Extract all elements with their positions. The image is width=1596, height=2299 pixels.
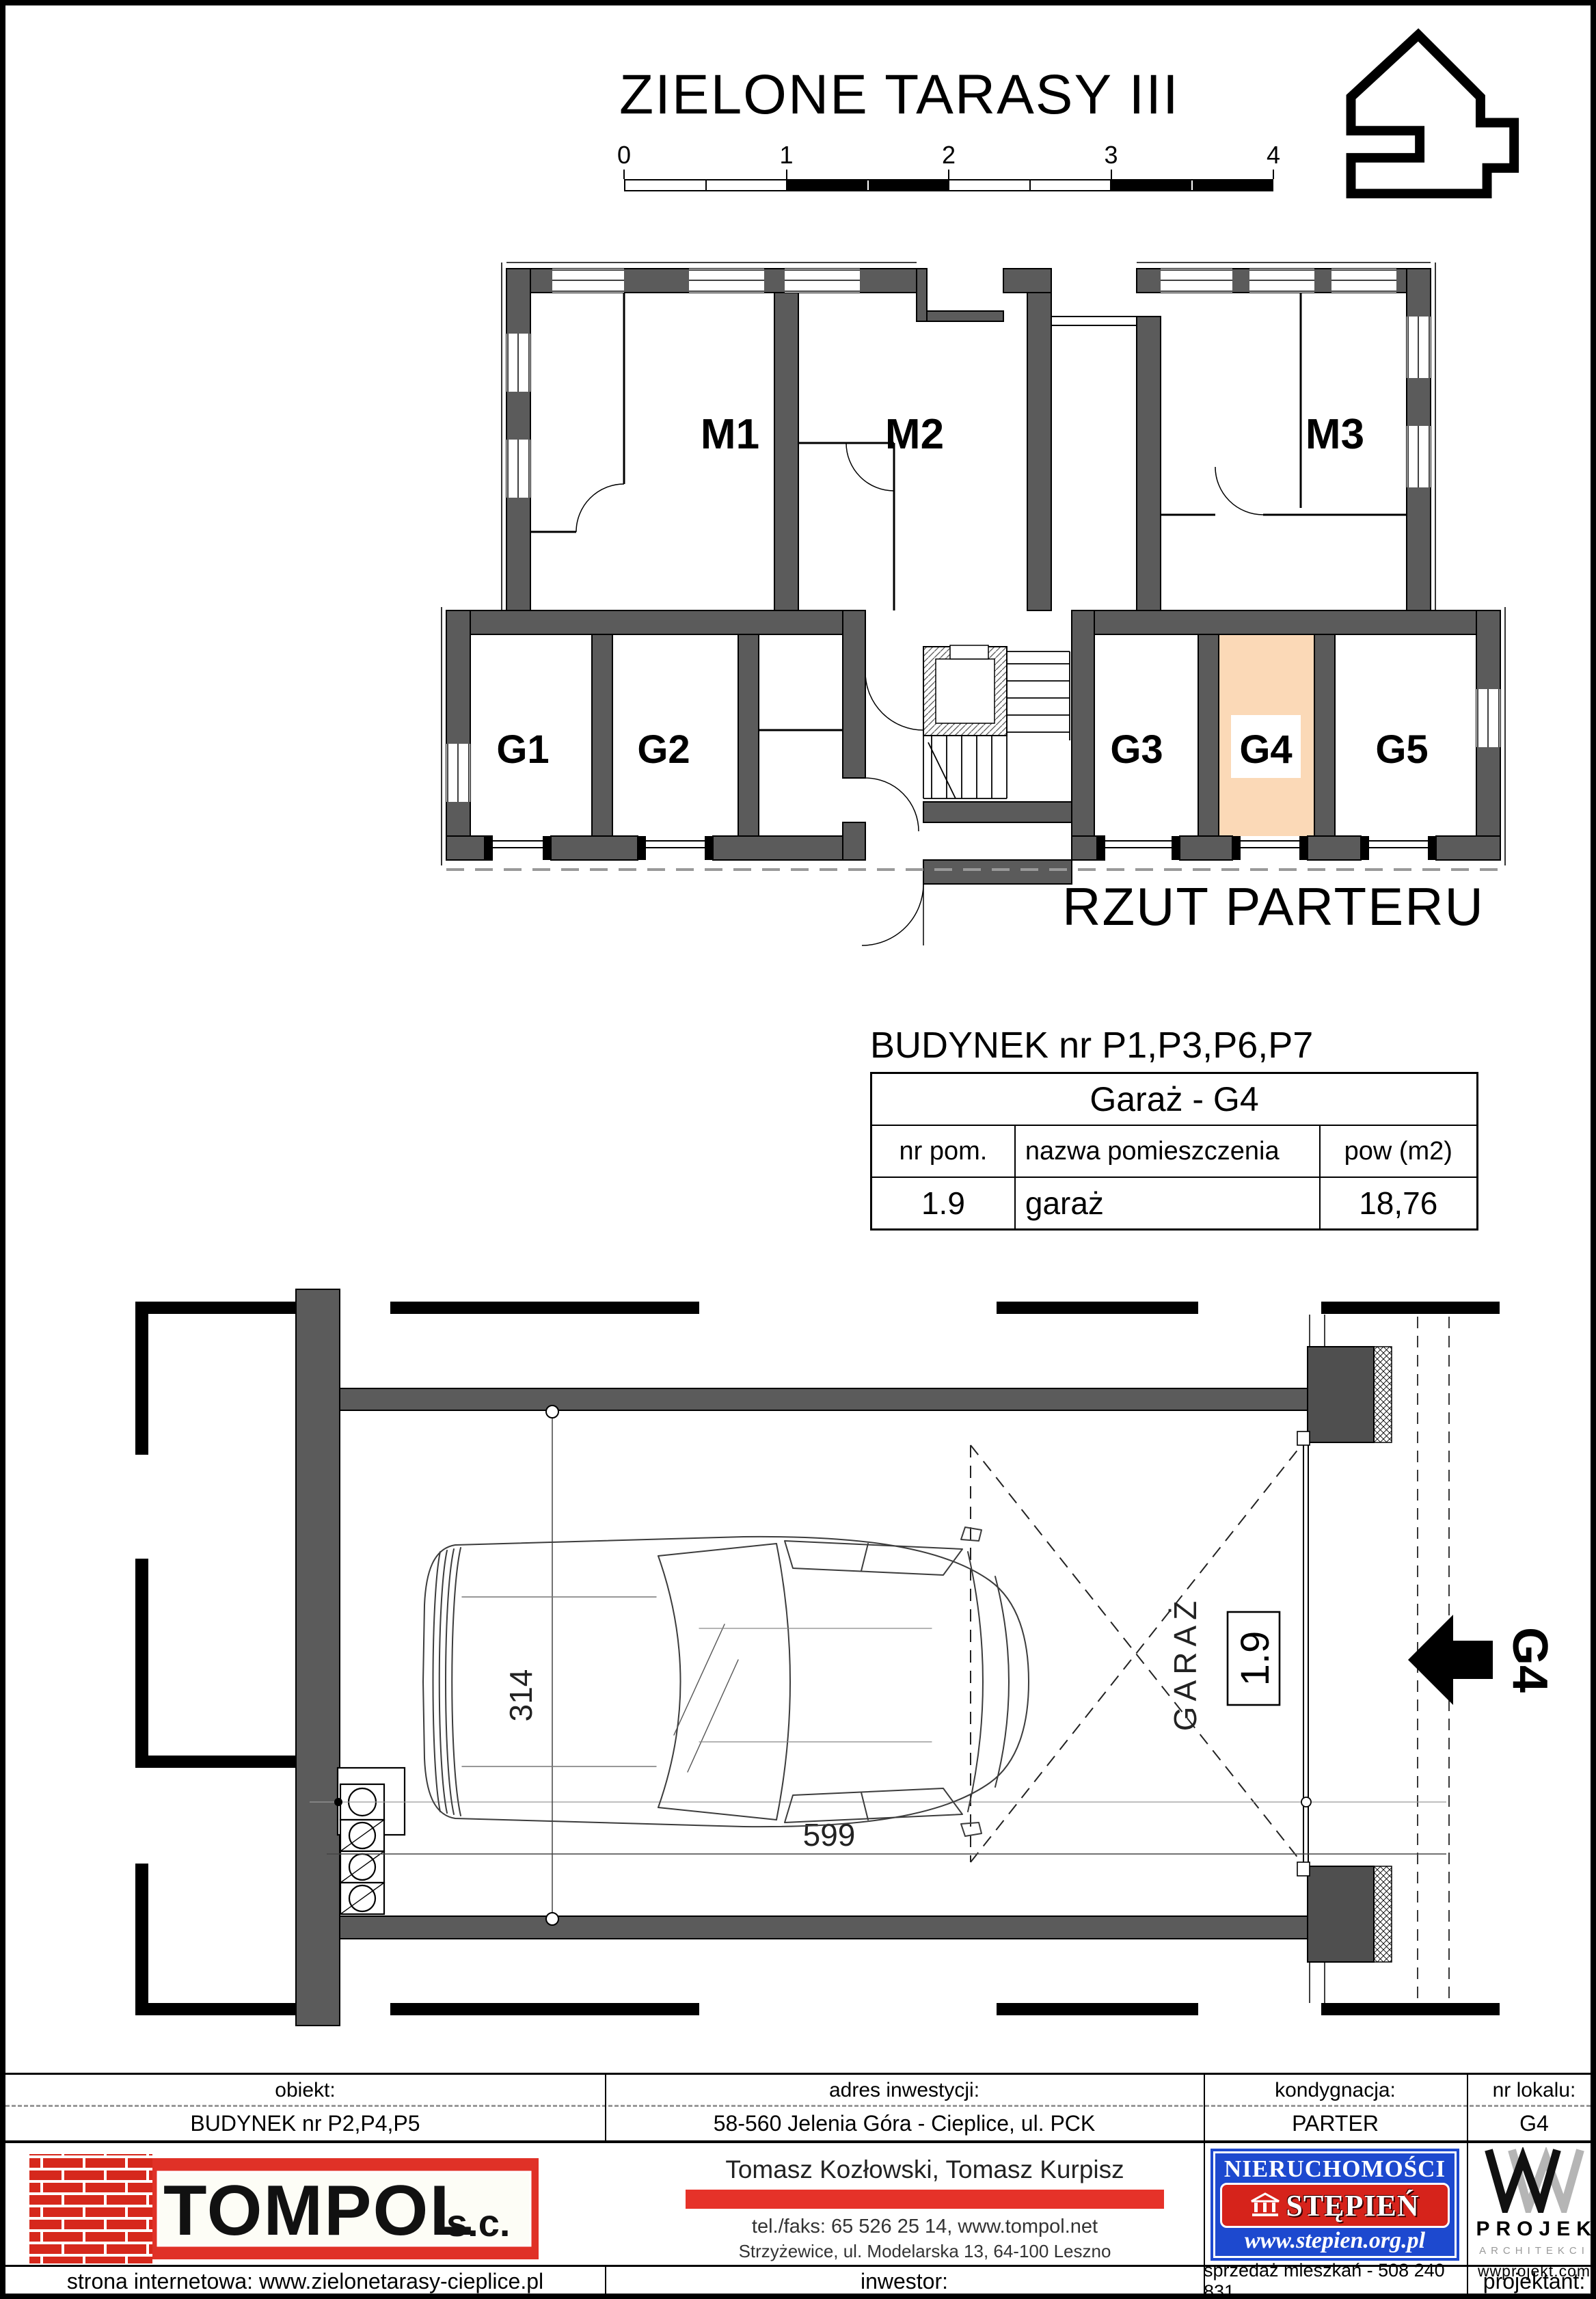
unit-label-g4: G4 [1239, 727, 1292, 772]
tompol-contact: Tomasz Kozłowski, Tomasz Kurpisz tel./fa… [679, 2155, 1171, 2262]
unit-label-m3: M3 [1306, 411, 1364, 458]
entry-arrow-icon [1408, 1615, 1493, 1705]
ground-floor-plan: M1 M2 M3 G1 G2 G3 G4 G5 RZUT PARTERU [442, 263, 1505, 945]
unit-label-m1: M1 [701, 411, 759, 458]
tompol-suffix: s.c. [446, 2201, 510, 2244]
entry-unit-label: G4 [1502, 1627, 1557, 1693]
unit-label-g1: G1 [496, 727, 549, 772]
col-header: nazwa pomieszczenia [1015, 1125, 1320, 1177]
footer-header-obiekt: obiekt: [5, 2075, 605, 2106]
garage-walls [296, 1289, 1308, 2026]
utility-meters [338, 1768, 405, 1914]
col-header: pow (m2) [1320, 1125, 1478, 1177]
room-name: GARAŻ [1167, 1596, 1203, 1731]
col-header: nr pom. [871, 1125, 1015, 1177]
footer-inwestor: inwestor: [605, 2267, 1204, 2296]
pillars [1308, 1315, 1392, 2003]
sheet: ZIELONE TARASY III 0 1 2 3 4 [0, 0, 1596, 2299]
footer-header-adres: adres inwestycji: [605, 2075, 1204, 2106]
unit-table: Garaż - G4 nr pom. nazwa pomieszczenia p… [870, 1072, 1478, 1231]
footer-header-kondygnacja: kondygnacja: [1204, 2075, 1467, 2106]
wprojekt-sub: ARCHITEKCI [1476, 2245, 1593, 2257]
garage-detail-plan: 314 599 [135, 1289, 1557, 2026]
dim-width: 599 [803, 1817, 856, 1853]
dim-depth: 314 [503, 1669, 539, 1722]
room-number: 1.9 [1233, 1631, 1277, 1686]
title-block: obiekt: adres inwestycji: kondygnacja: n… [5, 2073, 1591, 2294]
tompol-name: TOMPOL [163, 2171, 474, 2250]
unit-label-g5: G5 [1375, 727, 1428, 772]
stairwell [923, 645, 1070, 798]
cell-room-name: garaż [1015, 1177, 1320, 1230]
tompol-logo: TOMPOL s.c. [29, 2154, 542, 2263]
footer-sales-phone: sprzedaż mieszkań - 508 240 831 [1204, 2267, 1467, 2296]
table-title: Garaż - G4 [871, 1073, 1478, 1126]
footer-header-nr-lokalu: nr lokalu: [1467, 2075, 1596, 2106]
wprojekt-name: PROJEKT [1476, 2218, 1593, 2241]
tompol-phone: tel./faks: 65 526 25 14, www.tompol.net [679, 2216, 1171, 2238]
stepien-line1: NIERUCHOMOŚCI [1224, 2155, 1446, 2183]
wprojekt-w-icon [1483, 2147, 1586, 2213]
footer-projektant: projektant: [1467, 2267, 1596, 2296]
footer-value-obiekt: BUDYNEK nr P2,P4,P5 [5, 2106, 605, 2140]
footer-value-kondygnacja: PARTER [1204, 2106, 1467, 2140]
wprojekt-logo: PROJEKT ARCHITEKCI wwprojekt.com [1476, 2147, 1593, 2281]
cell-area: 18,76 [1320, 1177, 1478, 1230]
footer-value-adres: 58-560 Jelenia Góra - Cieplice, ul. PCK [605, 2106, 1204, 2140]
stepien-line2: STĘPIEŃ [1286, 2188, 1419, 2223]
unit-label-m2: M2 [885, 411, 944, 458]
building-header: BUDYNEK nr P1,P3,P6,P7 [870, 1024, 1313, 1066]
tompol-address: Strzyżewice, ul. Modelarska 13, 64-100 L… [679, 2241, 1171, 2262]
stepien-logo: NIERUCHOMOŚCI STĘPIEŃ www.stepien.org.pl [1210, 2149, 1459, 2261]
unit-label-g3: G3 [1110, 727, 1163, 772]
tompol-partners: Tomasz Kozłowski, Tomasz Kurpisz [679, 2155, 1171, 2184]
cell-room-no: 1.9 [871, 1177, 1015, 1230]
unit-label-g2: G2 [637, 727, 690, 772]
stepien-building-icon [1250, 2192, 1280, 2218]
footer-website: strona internetowa: www.zielonetarasy-ci… [5, 2267, 605, 2296]
footer-value-nr-lokalu: G4 [1467, 2106, 1596, 2140]
tompol-red-bar [686, 2190, 1164, 2209]
stepien-url: www.stepien.org.pl [1245, 2228, 1425, 2254]
plan-title: RZUT PARTERU [1062, 876, 1485, 937]
